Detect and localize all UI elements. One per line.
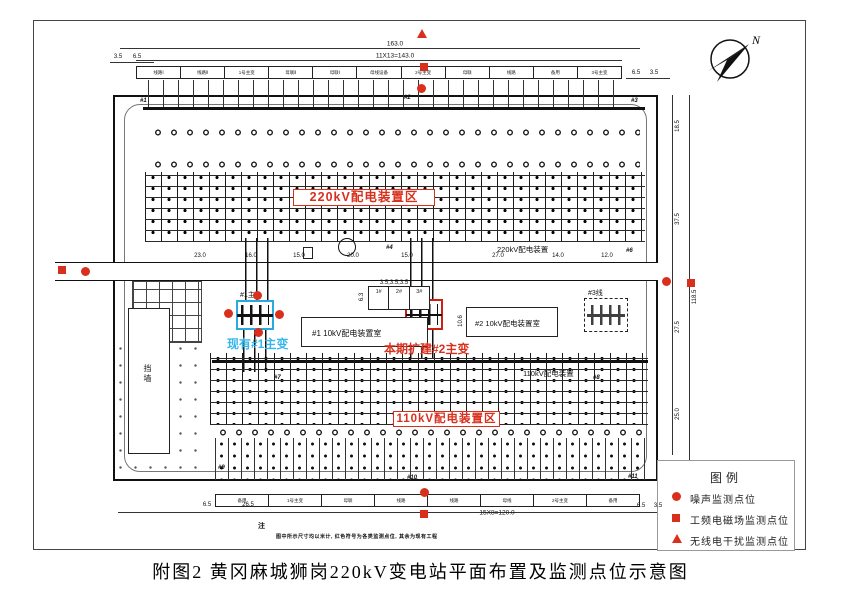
dim-label: 118.5 [692,290,698,305]
dim-line-right-inner [672,95,673,455]
dim-label: 163.0 [387,41,403,48]
dim-label: 12.0 [601,253,613,259]
dim-label: 15.0 [401,253,413,259]
capacitor-cells: 1#2#3# [368,286,430,310]
noise-monitor-point [253,291,262,300]
bay-cell-top-3: 母联Ⅱ [269,67,313,78]
dim-line-topright [626,78,670,79]
bay-cell-bottom-5: 母线 [481,495,534,506]
pole-label: #1 [140,98,147,104]
pole-label: #3 [631,98,638,104]
110kv-gantry-label: 110kV配电装置 [523,368,574,379]
figure-caption: 附图2 黄冈麻城狮岗220kV变电站平面布置及监测点位示意图 [0,558,841,584]
north-compass-icon: N [700,26,772,92]
pole-label: #4 [386,245,393,251]
legend-item-label: 工频电磁场监测点位 [690,512,789,527]
noise-monitor-point [81,267,90,276]
noise-monitor-point [224,309,233,318]
retaining-wall-building: 挡墙 [128,308,170,454]
pole-label: #7 [274,375,281,381]
110kv-feeder-strings [215,438,645,480]
bay-cell-top-5: 母线设备 [357,67,401,78]
110kv-insulator-row [215,428,645,437]
bay-cell-bottom-1: 1号主变 [269,495,322,506]
bay-cell-top-7: 母联 [446,67,490,78]
note-title: 注 [258,521,265,531]
dim-label: 6.5 [637,503,645,509]
dim-label: 6.3 [359,293,365,301]
pole-label: #8 [593,375,600,381]
cap-cell-1: 2# [389,287,409,309]
legend-box: 图例 噪声监测点位工频电磁场监测点位无线电干扰监测点位 [657,460,795,551]
bay-cell-bottom-2: 母联 [322,495,375,506]
dim-label: 6.5 [133,54,141,60]
note-text: 图中所示尺寸均以米计, 红色符号为各类监测点位, 其余为现有工程 [276,533,438,540]
220kv-main-bus [143,107,645,110]
retaining-wall-label: 挡墙 [142,364,153,384]
area-label-220kv: 220kV配电装置区 [293,189,435,206]
dim-line-topleft [110,62,154,63]
bay-cell-bottom-6: 2号主变 [534,495,587,506]
dim-line-top2 [136,60,622,61]
220kv-switch-grid [145,172,645,242]
bay-cell-top-1: 线路Ⅱ [181,67,225,78]
pole-label: #6 [626,248,633,254]
bay-cell-top-0: 线路Ⅰ [137,67,181,78]
bay-cell-top-8: 线路 [490,67,534,78]
220kv-feeder-lines [148,80,626,108]
bay-cell-top-2: 1号主变 [225,67,269,78]
dim-label: 11X13=143.0 [376,53,414,60]
noise-monitor-point [420,488,429,497]
pole-label: #2 [404,95,411,101]
t1-transformer-symbol [241,305,269,325]
noise-monitor-point [417,84,426,93]
legend-title: 图例 [658,469,794,486]
dim-label: 16.0 [245,253,257,259]
bay-cell-bottom-3: 线路 [375,495,428,506]
existing-transformer-label: 现有#1主变 [227,335,288,352]
emf-monitor-point [687,279,695,287]
dim-line-bottom [118,512,662,513]
bay-cell-bottom-7: 备用 [587,495,639,506]
dim-label: 3.5 [650,70,658,76]
compass-n-label: N [751,33,761,47]
new-transformer-label: 本期扩建#2主变 [384,340,469,357]
legend-item-label: 噪声监测点位 [690,491,756,506]
dim-label: 18.5 [675,120,681,132]
room2-label: #2 10kV配电装置室 [475,318,540,329]
room1-label: #1 10kV配电装置室 [312,328,381,339]
cap-cell-2: 3# [410,287,429,309]
220kv-gantry-label: 220kV配电装置 [497,244,548,255]
emf-monitor-point [420,63,428,71]
line3-dashed-box [584,298,628,332]
dim-label: 14.0 [552,253,564,259]
area-label-110kv: 110kV配电装置区 [393,411,500,427]
bay-cell-top-4: 母联Ⅰ [313,67,357,78]
noise-monitor-point [662,277,671,286]
radio-monitor-point [417,29,427,38]
dim-label: 3.5 [654,503,662,509]
middle-road [113,262,658,281]
emf-monitor-point [420,510,428,518]
pole-label: #11 [628,474,638,480]
triangle-legend-icon [672,534,682,543]
220kv-insulator-row-2 [150,160,640,169]
dim-label: 26.5 [242,502,254,508]
bay-strip-bottom: 备用1号主变母联线路线路母线2号主变备用 [215,494,640,507]
dim-label: 3.5 [114,54,122,60]
dim-label: 3.5,3.5,3.5 [380,280,408,286]
existing-t1-highlight-box [236,300,274,330]
room2-building: #2 10kV配电装置室 [466,307,558,337]
noise-monitor-point [275,310,284,319]
legend-row: 噪声监测点位 [658,490,794,504]
legend-item-label: 无线电干扰监测点位 [690,533,789,548]
dim-line-top [120,48,640,49]
dim-label: 23.0 [194,253,206,259]
dim-label: 27.0 [492,253,504,259]
dim-label: 15.0 [293,253,305,259]
line3-label: #3线 [588,288,603,298]
noise-monitor-point [254,328,263,337]
line3-transformer-symbol [591,305,621,325]
pole-label: #9 [218,465,225,471]
dim-label: 37.5 [675,213,681,225]
dim-label: 15X8=120.0 [479,510,514,517]
dim-label: 6.5 [203,502,211,508]
dim-label: 25.0 [675,408,681,420]
legend-row: 工频电磁场监测点位 [658,511,794,525]
cap-cell-0: 1# [369,287,389,309]
square-legend-icon [672,514,680,522]
dim-label: 10.6 [458,315,464,327]
dim-label: 20.0 [347,253,359,259]
legend-row: 无线电干扰监测点位 [658,532,794,546]
substation-plan-figure: N 线路Ⅰ线路Ⅱ1号主变母联Ⅱ母联Ⅰ母线设备2号主变母联线路备用3号主变 备用1… [0,0,841,595]
dim-label: 6.5 [632,70,640,76]
bay-cell-top-9: 备用 [534,67,578,78]
pole-label: #10 [407,475,417,481]
220kv-insulator-row-1 [150,128,640,137]
bay-cell-bottom-4: 线路 [428,495,481,506]
bay-cell-top-10: 3号主变 [578,67,621,78]
emf-monitor-point [58,266,66,274]
dim-label: 27.5 [675,321,681,333]
circle-legend-icon [672,492,681,501]
bay-strip-top: 线路Ⅰ线路Ⅱ1号主变母联Ⅱ母联Ⅰ母线设备2号主变母联线路备用3号主变 [136,66,622,79]
